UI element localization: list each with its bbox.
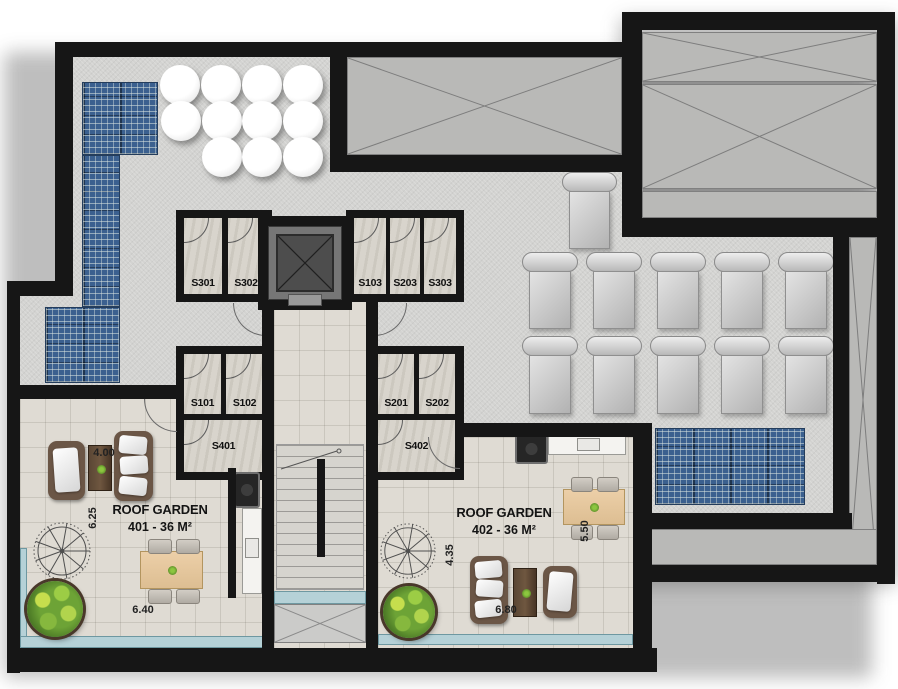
room-s202: S202 [419,354,455,414]
sun-lounger [714,252,770,329]
room-label: S103 [358,277,381,294]
sofa [114,431,153,501]
wall [833,218,849,529]
round-table [242,137,282,177]
dining-table [563,489,625,525]
room-label: S401 [212,440,235,452]
side-shaft-panel [849,237,877,563]
armchair [543,566,577,618]
stair-skylight-railing [274,591,366,604]
wall [262,300,274,648]
wall [366,300,378,648]
garden-402-unit: 402 - 36 M² [439,523,569,537]
chair [176,589,200,604]
sun-lounger [522,336,578,414]
sun-lounger [562,172,617,249]
spiral-stair-icon [379,522,437,580]
dim-6-80: 6.80 [476,604,536,616]
garden-401-title: ROOF GARDEN [95,502,225,517]
dining-table [140,551,203,589]
wall [330,155,642,172]
round-table [160,65,200,105]
sun-lounger [522,252,578,329]
round-table [242,65,282,105]
roof-strip [642,191,877,218]
chair [571,477,593,492]
potted-plant [27,581,83,637]
room-label: S101 [191,397,214,414]
wall [633,565,895,582]
wall [55,42,73,292]
wall [622,155,642,237]
dim-6-40: 6.40 [113,604,173,616]
skylight-panel [642,32,877,82]
room-s102: S102 [226,354,263,414]
elevator-icon [276,234,334,292]
room-s203: S203 [390,218,420,294]
room-s103: S103 [354,218,386,294]
elevator-door [288,294,322,306]
chair [597,525,619,540]
dim-4-00: 4.00 [74,447,134,459]
solar-panel-array [655,428,805,505]
chair [148,539,172,554]
skylight-panel [642,84,877,189]
wall [330,42,347,172]
round-table [202,137,242,177]
dim-5-50: 5.50 [579,509,591,553]
garden-railing [20,636,264,648]
sun-lounger [650,252,706,329]
stair-rail-line [277,445,365,475]
solar-panel-array [45,307,120,383]
sun-lounger [586,252,642,329]
spiral-stair-icon [32,521,92,581]
roof-strip [642,529,877,565]
dim-4-35: 4.35 [444,533,456,577]
round-table [242,101,282,141]
wall [640,218,895,237]
room-label: S301 [191,277,214,294]
wall [7,648,657,672]
round-table [283,137,323,177]
room-s201: S201 [378,354,414,414]
room-s401: S401 [184,420,263,472]
room-s303: S303 [424,218,456,294]
room-label: S302 [234,277,257,294]
sink-icon [577,438,600,451]
stair-skylight-panel [274,604,366,643]
room-s101: S101 [184,354,221,414]
garden-401-unit: 401 - 36 M² [95,520,225,534]
room-label: S402 [405,440,428,452]
round-table [283,101,323,141]
stove-icon [515,434,548,464]
chair [148,589,172,604]
main-staircase [276,444,364,590]
round-table [201,65,241,105]
room-label: S303 [428,277,451,294]
wall [633,423,652,663]
sun-lounger [586,336,642,414]
sink-icon [245,538,259,558]
skylight-panel [347,57,622,155]
room-label: S203 [393,277,416,294]
wall [622,12,895,30]
wall [20,385,180,399]
round-table [202,101,242,141]
chair [597,477,619,492]
potted-plant [383,586,435,638]
solar-panel-array [82,82,158,155]
solar-panel-array [82,155,120,307]
roof-floor-plan: S301 S302 S103 S203 S303 S101 S102 S401 … [0,0,898,689]
wall [7,281,20,673]
room-label: S202 [425,397,448,414]
wall [228,468,236,598]
room-label: S102 [233,397,256,414]
wall [462,423,652,437]
chair [176,539,200,554]
sun-lounger [778,336,834,414]
sun-lounger [778,252,834,329]
sun-lounger [650,336,706,414]
round-table [283,65,323,105]
round-table [161,101,201,141]
room-label: S201 [384,397,407,414]
dim-6-25: 6.25 [87,496,99,540]
stove-icon [234,472,260,508]
room-s301: S301 [184,218,222,294]
wall [877,12,895,584]
garden-402-title: ROOF GARDEN [439,505,569,520]
sun-lounger [714,336,770,414]
wall [642,513,852,529]
garden-railing [20,548,27,648]
